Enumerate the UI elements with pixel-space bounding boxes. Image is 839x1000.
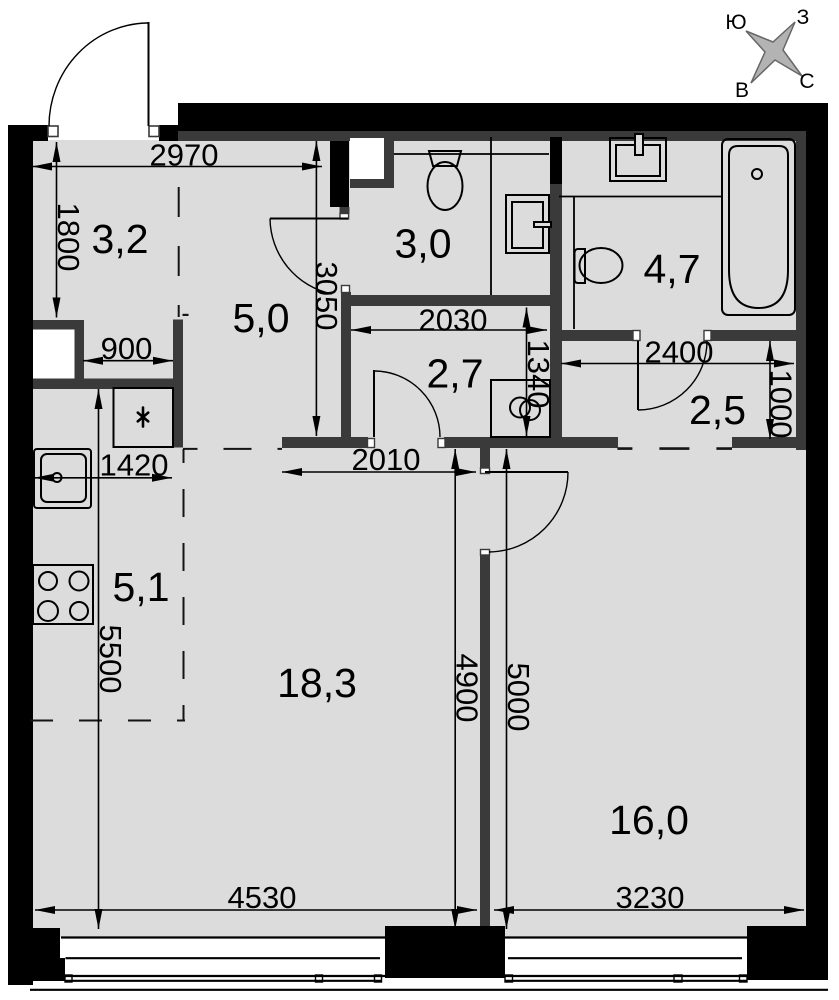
svg-text:3,0: 3,0 bbox=[395, 221, 452, 267]
svg-text:4900: 4900 bbox=[450, 654, 485, 723]
svg-text:В: В bbox=[735, 79, 749, 102]
svg-text:3050: 3050 bbox=[309, 262, 344, 331]
svg-text:2030: 2030 bbox=[419, 303, 488, 338]
svg-text:С: С bbox=[799, 70, 814, 93]
svg-text:16,0: 16,0 bbox=[609, 797, 689, 843]
svg-text:З: З bbox=[797, 6, 810, 29]
svg-text:2970: 2970 bbox=[150, 138, 219, 173]
svg-text:1000: 1000 bbox=[764, 370, 799, 439]
svg-text:5000: 5000 bbox=[501, 663, 536, 732]
svg-text:1420: 1420 bbox=[100, 448, 169, 483]
svg-text:1800: 1800 bbox=[51, 203, 86, 272]
svg-text:5,1: 5,1 bbox=[113, 564, 170, 610]
svg-text:2,7: 2,7 bbox=[427, 351, 484, 397]
svg-text:4,7: 4,7 bbox=[644, 246, 701, 292]
svg-text:5,0: 5,0 bbox=[233, 295, 290, 341]
svg-text:4530: 4530 bbox=[228, 880, 297, 915]
svg-text:18,3: 18,3 bbox=[277, 660, 357, 706]
svg-text:2,5: 2,5 bbox=[689, 387, 746, 433]
svg-text:3230: 3230 bbox=[616, 880, 685, 915]
svg-text:2400: 2400 bbox=[645, 335, 714, 370]
svg-text:3,2: 3,2 bbox=[92, 216, 149, 262]
svg-text:1340: 1340 bbox=[521, 340, 556, 409]
svg-text:Ю: Ю bbox=[725, 11, 746, 34]
svg-text:5500: 5500 bbox=[93, 625, 128, 694]
svg-text:2010: 2010 bbox=[352, 442, 421, 477]
svg-text:900: 900 bbox=[101, 331, 153, 366]
